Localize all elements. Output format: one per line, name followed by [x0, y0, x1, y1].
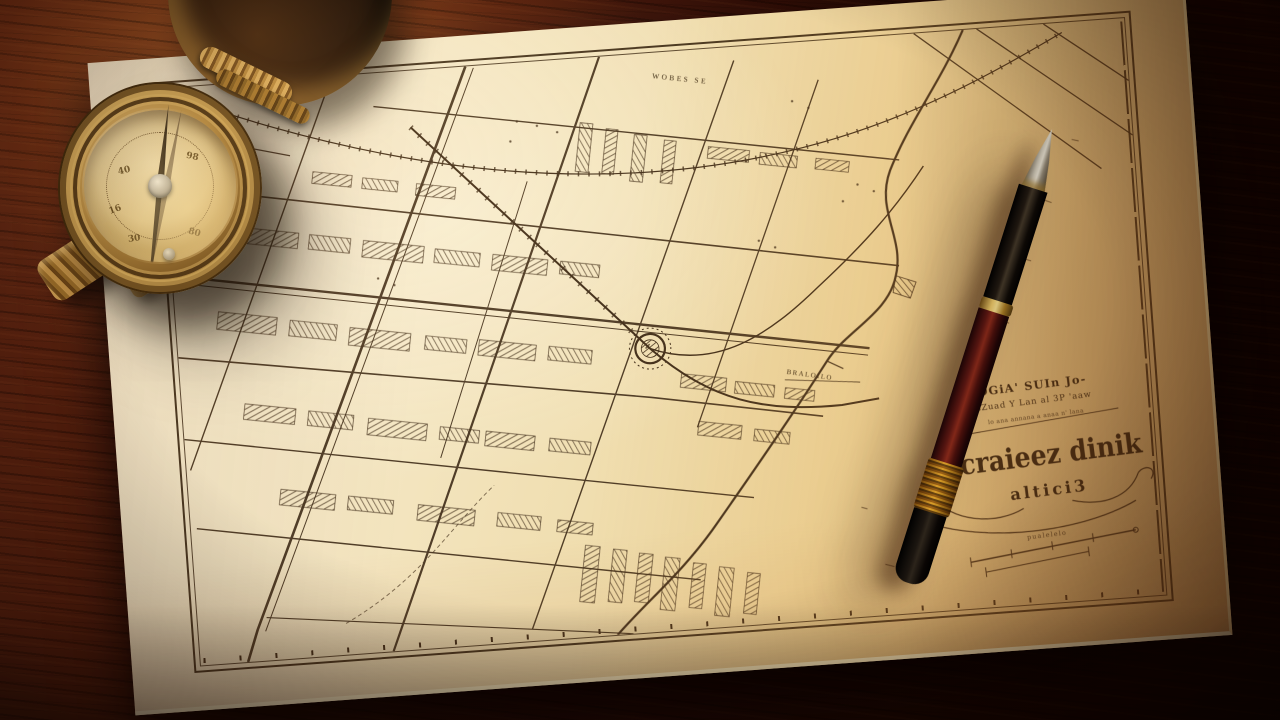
cartouche-line3: lo ana annana a anaa n' lana [988, 408, 1085, 426]
cartouche-subtitle: altici3 [1009, 476, 1089, 505]
map-street-label: WOBES SE [652, 71, 709, 85]
dial-numeral: 30 [127, 233, 141, 245]
compass-body: 40 98 16 30 80 [58, 82, 262, 294]
map-paper-sheet: WOBES SE BRALOILO OGiA' SUIn Jo- sZuad Y… [88, 0, 1233, 715]
photo-scene: WOBES SE BRALOILO OGiA' SUIn Jo- sZuad Y… [0, 0, 1280, 720]
compass-pivot [148, 174, 172, 198]
compass-screw [163, 248, 175, 260]
dial-numeral: 80 [187, 227, 202, 240]
city-blocks [204, 103, 882, 652]
compass-dial: 40 98 16 30 80 [84, 110, 236, 262]
cartouche-scale-note: pualelelo [1027, 529, 1068, 542]
shoreline [575, 30, 1005, 635]
